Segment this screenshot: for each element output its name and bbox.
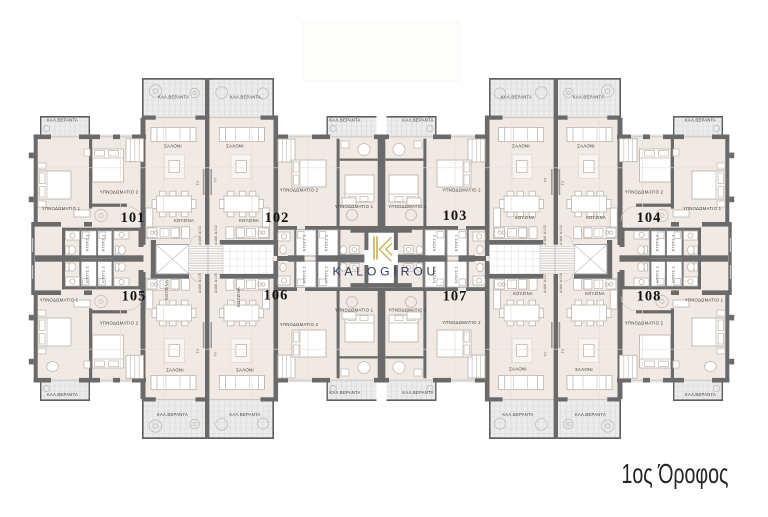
svg-text:ΚΑΛ.ΒΕΡΑΝΤΑ: ΚΑΛ.ΒΕΡΑΝΤΑ — [685, 117, 716, 122]
svg-text:ΚΟΥΖΙΝΑ: ΚΟΥΖΙΝΑ — [585, 291, 605, 296]
svg-text:ΔΙΑΜ.Α108: ΔΙΑΜ.Α108 — [559, 273, 563, 293]
svg-text:ΚΑΛ.ΒΕΡΑΝΤΑ: ΚΑΛ.ΒΕΡΑΝΤΑ — [573, 95, 604, 100]
svg-text:ΝΤΟΥΣ 1: ΝΤΟΥΣ 1 — [86, 235, 90, 252]
svg-text:ΣΑΛΟΝΙ: ΣΑΛΟΝΙ — [575, 367, 593, 372]
svg-text:ΚΑΛ.ΒΕΡΑΝΤΑ: ΚΑΛ.ΒΕΡΑΝΤΑ — [685, 392, 716, 397]
svg-text:ΚΑΛ.ΒΕΡΑΝΤΑ: ΚΑΛ.ΒΕΡΑΝΤΑ — [329, 390, 360, 395]
svg-text:103: 103 — [443, 208, 468, 224]
svg-text:ΝΤΟΥΣ 1: ΝΤΟΥΣ 1 — [672, 266, 676, 283]
svg-text:ΝΤΟΥΣ 1: ΝΤΟΥΣ 1 — [672, 235, 676, 252]
svg-text:ΥΠΝΟΔΩΜΑΤΙΟ 2: ΥΠΝΟΔΩΜΑΤΙΟ 2 — [280, 188, 319, 193]
svg-text:TV: TV — [561, 348, 565, 353]
svg-text:ΣΑΛΟΝΙ: ΣΑΛΟΝΙ — [236, 368, 254, 373]
svg-text:ΚΟΥΖΙΝΑ: ΚΟΥΖΙΝΑ — [513, 291, 533, 296]
svg-text:ΚΑΛ.ΒΕΡΑΝΤΑ: ΚΑΛ.ΒΕΡΑΝΤΑ — [157, 412, 188, 417]
svg-text:ΥΠΝΟΔΩΜΑΤΙΟ 1: ΥΠΝΟΔΩΜΑΤΙΟ 1 — [388, 204, 427, 209]
svg-text:ΚΑΛ.ΒΕΡΑΝΤΑ: ΚΑΛ.ΒΕΡΑΝΤΑ — [402, 390, 433, 395]
svg-text:ΚΟΥΖΙΝΑ: ΚΟΥΖΙΝΑ — [164, 280, 169, 300]
svg-text:ΚΑΛ.ΒΕΡΑΝΤΑ: ΚΑΛ.ΒΕΡΑΝΤΑ — [158, 95, 189, 100]
svg-text:ΝΤΟΥΣ 2: ΝΤΟΥΣ 2 — [325, 266, 329, 283]
svg-text:ΚΑΛ.ΒΕΡΑΝΤΑ: ΚΑΛ.ΒΕΡΑΝΤΑ — [329, 117, 360, 122]
svg-text:TV: TV — [214, 351, 218, 356]
svg-text:ΚΟΥΖΙΝΑ: ΚΟΥΖΙΝΑ — [174, 218, 194, 223]
svg-text:TV: TV — [214, 177, 218, 182]
svg-text:ΔΙΑΜ.Α107: ΔΙΑΜ.Α107 — [543, 273, 547, 293]
svg-text:ΥΠΝΟΔΩΜΑΤΙΟ 2: ΥΠΝΟΔΩΜΑΤΙΟ 2 — [100, 321, 139, 326]
svg-text:TV: TV — [561, 180, 565, 185]
svg-text:ΥΠΝΟΔΩΜΑΤΙΟ 2: ΥΠΝΟΔΩΜΑΤΙΟ 2 — [442, 320, 481, 325]
svg-text:1ος Όροφος: 1ος Όροφος — [622, 458, 729, 489]
svg-text:102: 102 — [265, 210, 290, 226]
svg-text:ΥΠΝΟΔΩΜΑΤΙΟ 2: ΥΠΝΟΔΩΜΑΤΙΟ 2 — [442, 188, 481, 193]
svg-text:104: 104 — [637, 210, 662, 226]
svg-text:ΥΠΝΟΔΩΜΑΤΙΟ 1: ΥΠΝΟΔΩΜΑΤΙΟ 1 — [683, 206, 722, 211]
svg-text:ΥΠΝΟΔΩΜΑΤΙΟ 1: ΥΠΝΟΔΩΜΑΤΙΟ 1 — [40, 298, 79, 303]
svg-text:ΥΠΝΟΔΩΜΑΤΙΟ 2: ΥΠΝΟΔΩΜΑΤΙΟ 2 — [280, 322, 319, 327]
svg-text:ΝΤΟΥΣ 1: ΝΤΟΥΣ 1 — [86, 266, 90, 283]
svg-text:ΥΠΝΟΔΩΜΑΤΙΟ 1: ΥΠΝΟΔΩΜΑΤΙΟ 1 — [335, 308, 374, 313]
svg-text:ΣΑΛΟΝΙ: ΣΑΛΟΝΙ — [166, 368, 184, 373]
svg-text:ΔΙΑΜ.Α105: ΔΙΑΜ.Α105 — [198, 273, 202, 293]
svg-text:KALOGIROU: KALOGIROU — [332, 265, 439, 279]
svg-text:TV: TV — [544, 177, 548, 182]
svg-text:ΥΠΝΟΔΩΜΑΤΙΟ 2: ΥΠΝΟΔΩΜΑΤΙΟ 2 — [625, 190, 664, 195]
svg-text:ΔΙΑΜ.Α106: ΔΙΑΜ.Α106 — [214, 273, 218, 293]
svg-text:ΚΑΛ.ΒΕΡΑΝΤΑ: ΚΑΛ.ΒΕΡΑΝΤΑ — [402, 117, 433, 122]
svg-text:ΣΑΛΟΝΙ: ΣΑΛΟΝΙ — [164, 144, 182, 149]
svg-text:ΝΤΟΥΣ 1: ΝΤΟΥΣ 1 — [303, 266, 307, 283]
svg-text:ΥΠΝΟΔΩΜΑΤΙΟ 1: ΥΠΝΟΔΩΜΑΤΙΟ 1 — [685, 298, 724, 303]
svg-text:ΝΤΟΥΣ 2: ΝΤΟΥΣ 2 — [433, 235, 437, 252]
svg-text:ΔΙΑΜ.Α104: ΔΙΑΜ.Α104 — [559, 225, 563, 245]
svg-text:TV: TV — [544, 351, 548, 356]
svg-text:ΚΑΛ.ΒΕΡΑΝΤΑ: ΚΑΛ.ΒΕΡΑΝΤΑ — [47, 117, 78, 122]
svg-text:ΚΑΛ.ΒΕΡΑΝΤΑ: ΚΑΛ.ΒΕΡΑΝΤΑ — [501, 95, 532, 100]
svg-text:ΥΠΝΟΔΩΜΑΤΙΟ 1: ΥΠΝΟΔΩΜΑΤΙΟ 1 — [388, 308, 427, 313]
svg-text:107: 107 — [443, 289, 468, 305]
svg-text:ΥΠΝΟΔΩΜΑΤΙΟ 2: ΥΠΝΟΔΩΜΑΤΙΟ 2 — [625, 321, 664, 326]
svg-text:ΚΑΛ.ΒΕΡΑΝΤΑ: ΚΑΛ.ΒΕΡΑΝΤΑ — [230, 95, 261, 100]
svg-text:ΚΑΛ.ΒΕΡΑΝΤΑ: ΚΑΛ.ΒΕΡΑΝΤΑ — [47, 392, 78, 397]
svg-text:ΚΟΥΖΙΝΑ: ΚΟΥΖΙΝΑ — [586, 215, 606, 220]
svg-text:TV: TV — [196, 348, 200, 353]
svg-text:101: 101 — [121, 210, 146, 226]
svg-text:ΝΤΟΥΣ 2: ΝΤΟΥΣ 2 — [325, 235, 329, 252]
svg-text:ΚΟΥΖΙΝΑ: ΚΟΥΖΙΝΑ — [515, 215, 535, 220]
svg-text:105: 105 — [122, 289, 147, 305]
svg-text:ΥΠΝΟΔΩΜΑΤΙΟ 1: ΥΠΝΟΔΩΜΑΤΙΟ 1 — [42, 206, 81, 211]
svg-text:ΝΤΟΥΣ 2: ΝΤΟΥΣ 2 — [102, 235, 106, 252]
svg-text:ΚΑΛ.ΒΕΡΑΝΤΑ: ΚΑΛ.ΒΕΡΑΝΤΑ — [575, 412, 606, 417]
svg-text:ΝΤΟΥΣ 1: ΝΤΟΥΣ 1 — [455, 235, 459, 252]
svg-text:108: 108 — [637, 289, 662, 305]
svg-text:TV: TV — [196, 180, 200, 185]
svg-text:ΝΤΟΥΣ 2: ΝΤΟΥΣ 2 — [656, 266, 660, 283]
svg-text:ΣΑΛΟΝΙ: ΣΑΛΟΝΙ — [509, 367, 527, 372]
svg-text:ΚΟΥΖΙΝΑ: ΚΟΥΖΙΝΑ — [239, 218, 259, 223]
svg-text:ΝΤΟΥΣ 1: ΝΤΟΥΣ 1 — [455, 266, 459, 283]
svg-text:ΔΙΑΜ.Α101: ΔΙΑΜ.Α101 — [198, 225, 202, 245]
svg-text:ΚΑΛ.ΒΕΡΑΝΤΑ: ΚΑΛ.ΒΕΡΑΝΤΑ — [502, 412, 533, 417]
svg-text:106: 106 — [264, 288, 289, 304]
svg-text:ΣΑΛΟΝΙ: ΣΑΛΟΝΙ — [512, 144, 530, 149]
svg-text:ΣΑΛΟΝΙ: ΣΑΛΟΝΙ — [577, 144, 595, 149]
svg-text:ΚΟΥΖΙΝΑ: ΚΟΥΖΙΝΑ — [236, 287, 241, 307]
svg-text:ΔΙΑΜ.Α103: ΔΙΑΜ.Α103 — [543, 225, 547, 245]
svg-text:ΝΤΟΥΣ 2: ΝΤΟΥΣ 2 — [102, 266, 106, 283]
svg-text:ΥΠΝΟΔΩΜΑΤΙΟ 2: ΥΠΝΟΔΩΜΑΤΙΟ 2 — [100, 190, 139, 195]
svg-text:ΝΤΟΥΣ 1: ΝΤΟΥΣ 1 — [303, 235, 307, 252]
svg-text:ΚΑΛ.ΒΕΡΑΝΤΑ: ΚΑΛ.ΒΕΡΑΝΤΑ — [229, 412, 260, 417]
svg-text:ΔΙΑΜ.Α102: ΔΙΑΜ.Α102 — [214, 225, 218, 245]
svg-text:ΣΑΛΟΝΙ: ΣΑΛΟΝΙ — [226, 144, 244, 149]
svg-text:ΥΠΝΟΔΩΜΑΤΙΟ 1: ΥΠΝΟΔΩΜΑΤΙΟ 1 — [335, 204, 374, 209]
svg-text:ΝΤΟΥΣ 2: ΝΤΟΥΣ 2 — [656, 235, 660, 252]
